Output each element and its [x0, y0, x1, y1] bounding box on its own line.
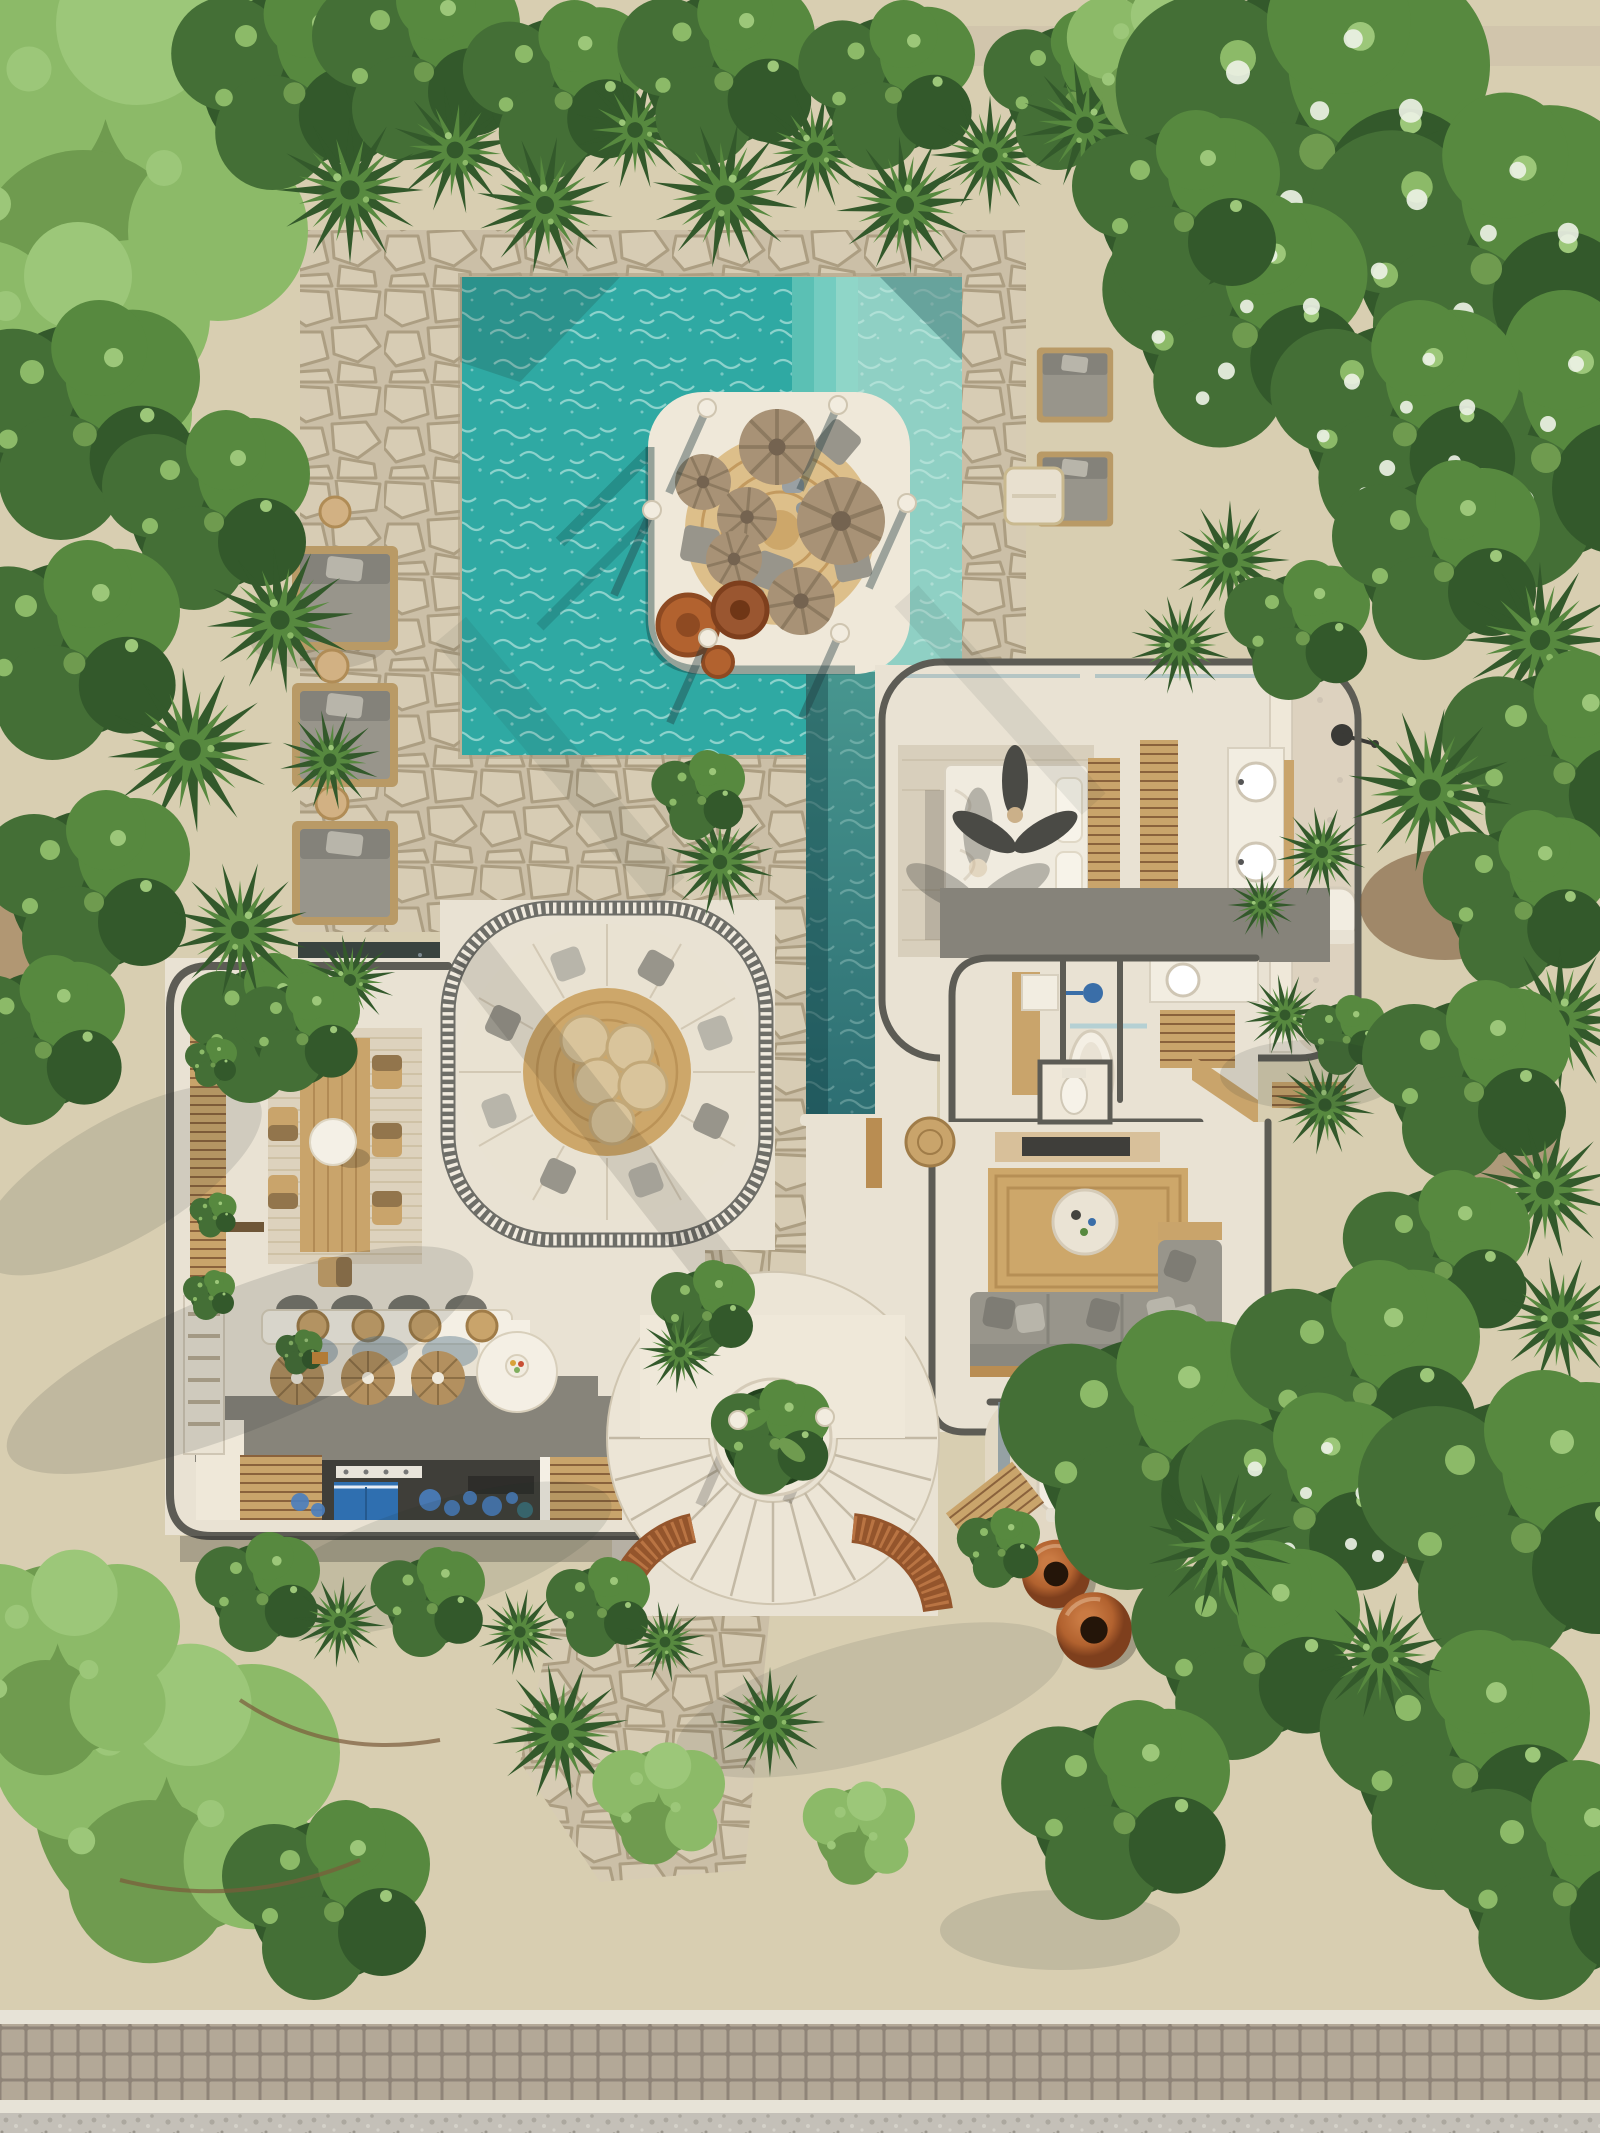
sphere-pendant-lamp	[310, 1119, 356, 1165]
road	[0, 2010, 1600, 2133]
curb-bottom	[0, 2100, 1600, 2113]
vanity	[1228, 748, 1294, 898]
powder-toilet	[1061, 1076, 1087, 1114]
fruit-bowl	[506, 1355, 528, 1377]
lap-channel	[800, 672, 882, 1126]
curb-top	[0, 2010, 1600, 2024]
round-sink	[1167, 964, 1199, 996]
coffee-table	[1053, 1190, 1117, 1254]
aerial-villa-render	[0, 0, 1600, 2133]
powder-room	[1040, 1062, 1110, 1122]
cooktop	[336, 1466, 422, 1478]
villa-scene	[0, 0, 1600, 2133]
bath-stool	[1083, 983, 1103, 1003]
paver-road	[0, 2024, 1600, 2100]
bedside-deck	[1140, 740, 1178, 890]
